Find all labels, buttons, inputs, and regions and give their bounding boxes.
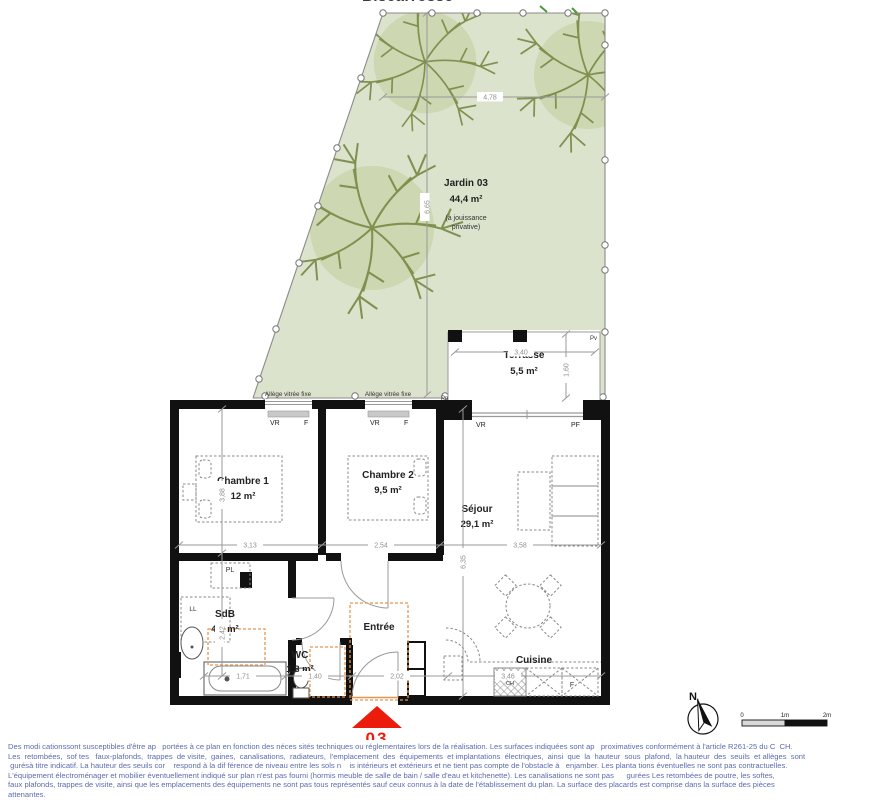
scale-bar: 0 1m 2m (740, 713, 831, 726)
unit-marker: 03 (352, 706, 402, 740)
chambre2-window: Allège vitrée fixe VR F (365, 391, 412, 427)
garden-area-label: 44,4 m² (450, 194, 483, 205)
vr-label: VR (270, 420, 280, 427)
garden-height-dim: 6,65 (425, 200, 432, 214)
terrace-height-dim: 1,60 (564, 363, 571, 377)
hedge-mark (572, 8, 577, 13)
terrace-pv-label: Pv (590, 336, 597, 342)
sejour-name: Séjour (461, 504, 492, 515)
unit-arrow-icon (352, 706, 402, 728)
chambre2-area: 9,5 m² (374, 485, 401, 496)
cuisine-name: Cuisine (516, 655, 553, 666)
sdb-height-dim: 2,42 (220, 626, 227, 640)
vr-label: VR (476, 422, 486, 429)
fridge-label: F (570, 682, 574, 689)
garden-note-line1: (à jouissance (445, 215, 486, 222)
water-heater-label: CH (506, 681, 514, 687)
kitchen-tall-unit (408, 669, 425, 696)
wc-width-dim: 1,40 (308, 674, 322, 681)
disclaimer-line: attenantes. (8, 790, 874, 800)
vr-label: VR (370, 420, 380, 427)
compass-north-label: N (689, 691, 697, 703)
hedge-mark (540, 6, 547, 12)
chambre2-name: Chambre 2 (362, 470, 414, 481)
disclaimer-line: L'équipement électroménager et mobilier … (8, 771, 874, 781)
f-label: F (404, 420, 408, 427)
garden-note-line2: privative) (452, 224, 480, 231)
terrace-width-dim: 3,40 (514, 350, 528, 357)
chambre1-bed (183, 456, 282, 522)
sdb-name: SdB (215, 609, 235, 620)
garden-width-dim: 4,78 (483, 95, 497, 102)
chambre1-name: Chambre 1 (217, 476, 269, 487)
terrace: Pv Pp Terrasse 5,5 m² 3,40 1,60 (441, 330, 600, 402)
floor-plan-svg: 4,78 6,65 Jardin 03 44,4 m² (à jouissanc… (0, 0, 875, 740)
disclaimer: Des modi cationssont susceptibles d'être… (8, 742, 874, 800)
sejour-bay-window: VR PF (472, 410, 583, 429)
kitchen-tall-unit (408, 642, 425, 669)
chambre2-width-dim: 2,54 (374, 543, 388, 550)
scale-zero: 0 (740, 713, 744, 719)
disclaimer-line: gurésà titre indicatif. La hauteur des s… (8, 761, 874, 771)
f-label: F (304, 420, 308, 427)
sejour-height-dim: 6,35 (461, 555, 468, 569)
chambre1-height-dim: 3,88 (220, 488, 227, 502)
pf-label: PF (571, 422, 580, 429)
wc-name: WC (292, 650, 309, 661)
disclaimer-line: faux plafonds, trappes de visite, ainsi … (8, 780, 874, 790)
disclaimer-line: Les retombées, sof tes faux-plafonds, tr… (8, 752, 874, 762)
scale-two: 2m (823, 713, 831, 719)
sdb-width-dim: 1,71 (236, 674, 250, 681)
sejour-area: 29,1 m² (461, 519, 494, 530)
chambre1-width-dim: 3,13 (243, 543, 257, 550)
entree-name: Entrée (363, 622, 395, 633)
chambre1-window: Allège vitrée fixe VR F (265, 391, 312, 427)
cuisine-width-dim: 3,46 (501, 674, 515, 681)
disclaimer-line: Des modi cationssont susceptibles d'être… (8, 742, 874, 752)
allege-label: Allège vitrée fixe (265, 391, 312, 398)
scale-one: 1m (781, 713, 789, 719)
chambre1-area: 12 m² (231, 491, 256, 502)
unit-number: 03 (366, 729, 389, 740)
sejour-width-dim: 3,58 (513, 543, 527, 550)
washer-label: LL (189, 606, 197, 613)
closet-label: PL (226, 567, 235, 574)
washbasin (181, 627, 203, 659)
allege-label: Allège vitrée fixe (365, 391, 412, 398)
compass-icon: N (683, 691, 721, 737)
terrace-area-label: 5,5 m² (510, 366, 537, 377)
garden-name-label: Jardin 03 (444, 178, 488, 189)
entree-width-dim: 2,02 (390, 674, 404, 681)
